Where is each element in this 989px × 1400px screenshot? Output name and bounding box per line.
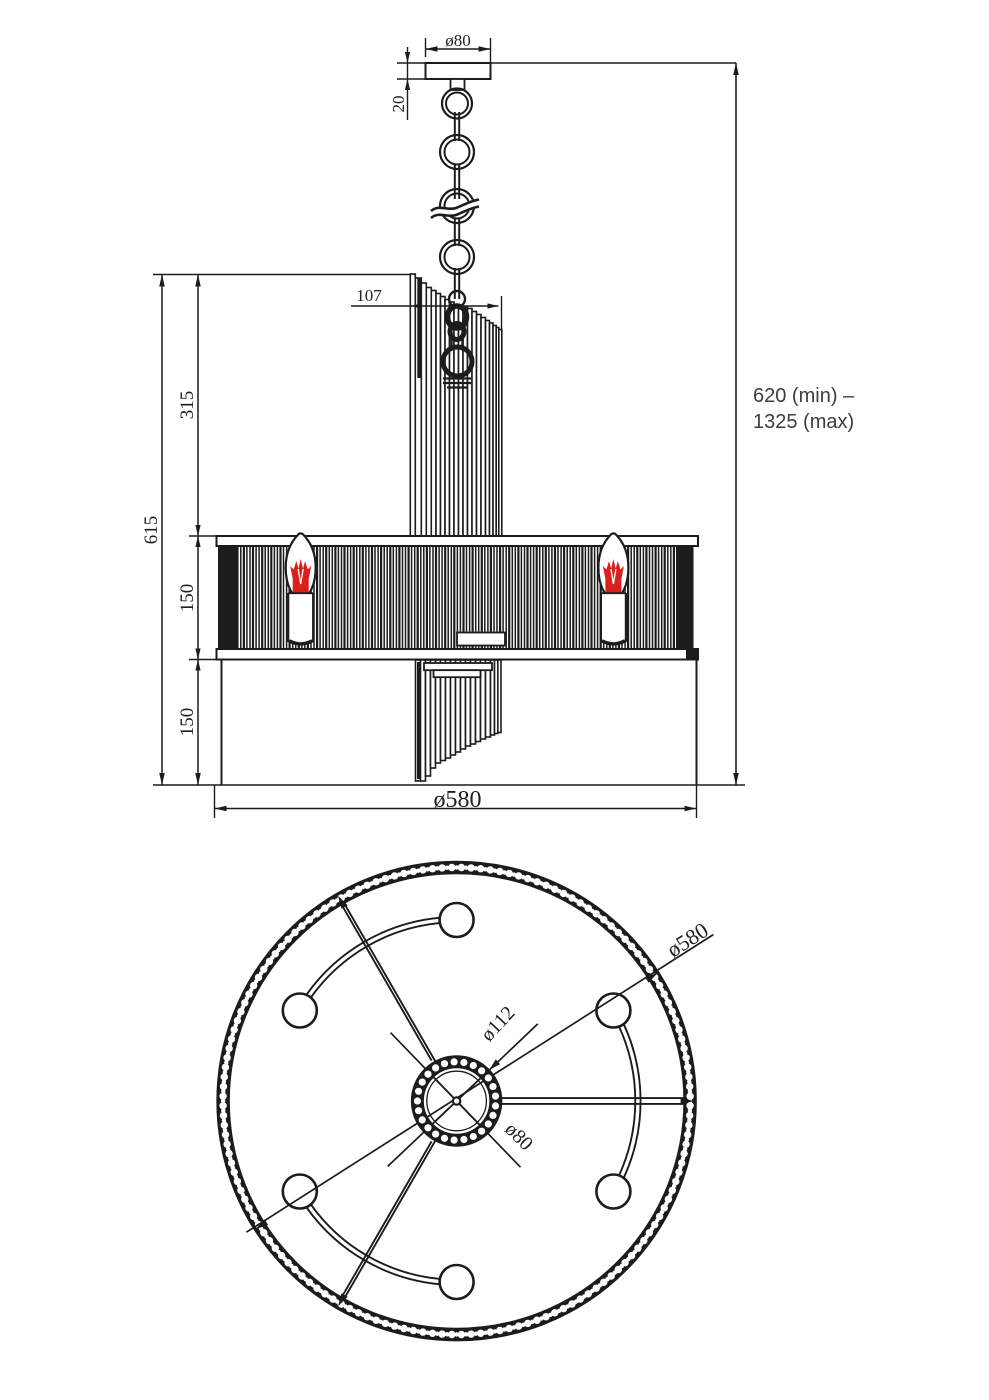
svg-text:620 (min) –: 620 (min) – xyxy=(753,385,855,407)
svg-text:615: 615 xyxy=(141,516,162,545)
svg-text:ø80: ø80 xyxy=(445,31,471,50)
svg-text:315: 315 xyxy=(177,391,198,420)
svg-text:150: 150 xyxy=(177,584,198,613)
svg-text:150: 150 xyxy=(177,708,198,737)
svg-text:ø580: ø580 xyxy=(434,787,482,813)
svg-text:20: 20 xyxy=(389,96,408,113)
svg-text:107: 107 xyxy=(356,286,382,305)
svg-text:1325 (max): 1325 (max) xyxy=(753,411,854,433)
